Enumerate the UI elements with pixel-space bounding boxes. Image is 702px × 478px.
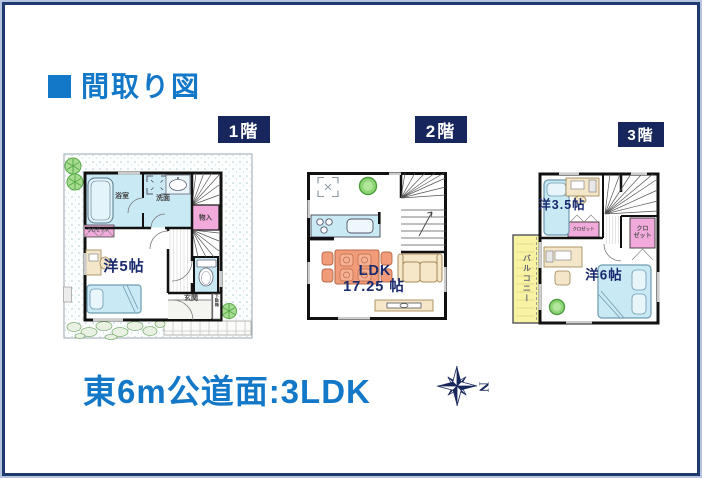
- sink-icon: [166, 175, 190, 194]
- floorplan-1f-drawing: [63, 153, 253, 340]
- floor-label-2f: 2階: [415, 116, 467, 143]
- room-label-entrance: 玄関: [184, 295, 198, 303]
- floorplan-3f-drawing: [511, 172, 663, 330]
- compass-main-points: [437, 366, 477, 406]
- bed-icon: [87, 285, 141, 313]
- kitchen-wall-stub2: [378, 212, 381, 224]
- plant-icon: [360, 178, 377, 195]
- room-label-western6: 洋6帖: [585, 269, 623, 284]
- room-label-closet-center: クロゼット: [573, 227, 595, 232]
- tv-board-icon: [375, 300, 433, 311]
- plant-icon-3f: [550, 300, 565, 315]
- flyer-frame: 間取り図 1階 2階 3階: [2, 2, 700, 476]
- room-label-western5: 洋5帖: [103, 259, 144, 276]
- kitchen-sink-icon: [347, 219, 373, 233]
- room-label-ldk-size: 17.25 帖: [343, 280, 405, 296]
- floorplan-flyer: 間取り図 1階 2階 3階: [0, 0, 702, 478]
- room-label-closet-1f: クロゼット: [87, 229, 109, 234]
- entrance-floor: [168, 300, 211, 319]
- title-row: 間取り図: [48, 65, 201, 105]
- bathtub-icon: [88, 178, 113, 223]
- kitchen-wall-stub: [310, 237, 334, 240]
- floorplan-2f: LDK 17.25 帖: [307, 172, 447, 320]
- room-label-shoebox: 下駄箱: [214, 294, 219, 307]
- desk-icon-3f-2: [544, 247, 582, 267]
- utility-box: [64, 287, 72, 302]
- room-label-western35: 洋3.5帖: [538, 199, 585, 213]
- floorplan-1f: 浴室 洗面 物入 クロゼット 洋5帖 玄関 下駄箱: [63, 153, 253, 340]
- chair-icon-3f: [555, 271, 570, 285]
- room-label-washroom: 洗面: [156, 195, 170, 203]
- road-caption: 東6m公道面:3LDK: [83, 365, 371, 413]
- approach-tiles: [164, 321, 251, 335]
- room-label-closet-right: クロ ゼット: [633, 226, 651, 239]
- floorplan-2f-drawing: [307, 172, 447, 320]
- building-outline-2f: [309, 174, 446, 319]
- sofa-icon: [398, 254, 442, 282]
- floorplan-3f: 洋3.5帖 クロゼット クロ ゼット バルコニー 洋6帖: [511, 172, 663, 330]
- floor-label-1f: 1階: [218, 116, 270, 143]
- compass-rose-icon: N: [429, 361, 491, 416]
- closet-right-line1: クロ: [633, 226, 651, 233]
- page-title: 間取り図: [81, 65, 201, 105]
- room-label-ldk: LDK: [359, 264, 392, 280]
- room-label-balcony: バルコニー: [522, 254, 531, 304]
- room-label-bath: 浴室: [115, 193, 129, 201]
- floor-label-3f: 3階: [618, 122, 664, 147]
- closet-right-line2: ゼット: [633, 233, 651, 240]
- compass-north-letter: N: [476, 382, 491, 392]
- kitchen-counter: [311, 215, 380, 237]
- room-label-storage: 物入: [199, 214, 212, 221]
- title-bullet-square: [48, 75, 71, 98]
